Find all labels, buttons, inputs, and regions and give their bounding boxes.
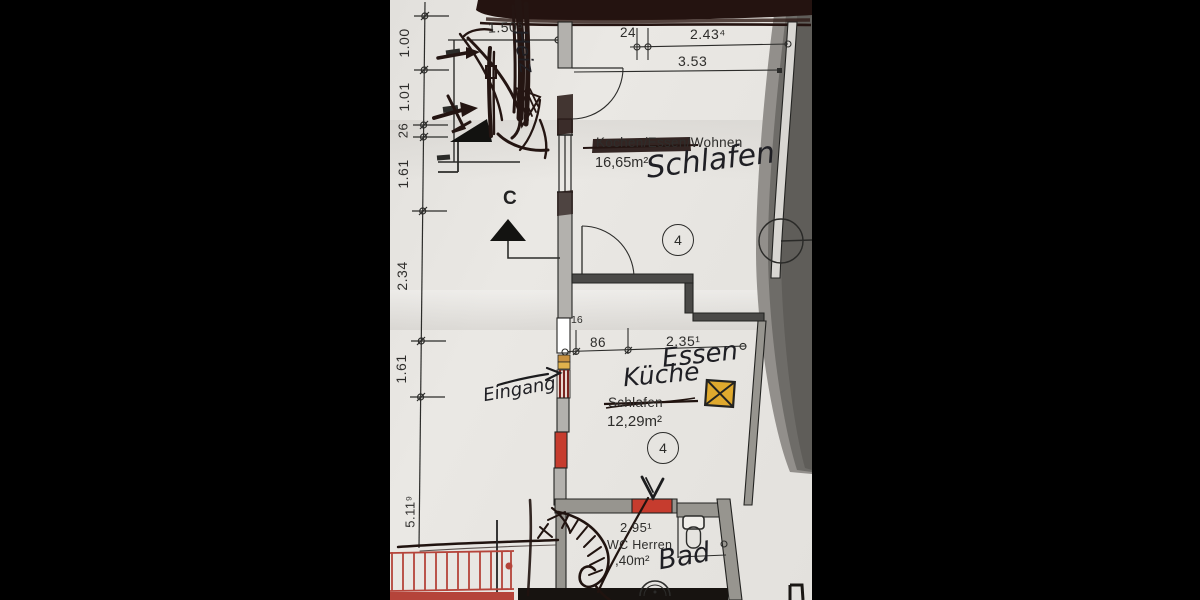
partial-glyph-bottom-right [790, 585, 803, 600]
red-stairs [390, 551, 514, 600]
dim-left-1: 1.00 [397, 23, 411, 63]
top-room-number: 4 [662, 224, 694, 256]
paper-edge-backdrop [756, 0, 812, 474]
dim-left-7: 5.11⁹ [404, 489, 417, 535]
handwritten-kueche: Küche [622, 359, 700, 391]
window-x-symbol [705, 380, 735, 407]
top-room-area: 16,65m² [595, 156, 648, 171]
dim-left-2: 1.01 [397, 77, 411, 117]
dim-24: 24 [620, 26, 636, 40]
dim-left-5: 2.34 [395, 256, 409, 296]
kitchen-area: 12,29m² [607, 414, 662, 429]
dim-86: 86 [590, 336, 606, 350]
hand-arrow-down [642, 477, 663, 498]
dim-295: 2.95¹ [620, 521, 652, 534]
bath-area: ,40m² [615, 554, 650, 568]
dim-left-6: 1.61 [394, 349, 408, 389]
dim-243: 2.43⁴ [690, 27, 726, 41]
kitchen-room-number: 4 [647, 432, 679, 464]
dim-left-3: 26 [397, 116, 410, 146]
section-c-label: C [503, 189, 517, 208]
door-top-room-upper [572, 68, 623, 119]
red-wall-segment-entry [555, 432, 567, 468]
floorplan-photo: 1.00 1.01 26 1.61 2.34 1.61 5.11⁹ 1.50⁵ … [390, 0, 812, 600]
wall-block-yellow [558, 362, 570, 369]
red-wall-segment-bath [632, 499, 672, 513]
kitchen-printed-name-struck: Schlafen [608, 396, 663, 410]
door-top-room-lower [582, 226, 634, 276]
dim-left-4: 1.61 [396, 154, 410, 194]
screenshot-stage: 1.00 1.01 26 1.61 2.34 1.61 5.11⁹ 1.50⁵ … [0, 0, 1200, 600]
dim-353: 3.53 [678, 54, 707, 68]
left-dimension-chain [410, 2, 449, 548]
window-symbol-upper [557, 135, 573, 192]
floorplan-linework [390, 0, 812, 600]
wall-block-tan [558, 355, 570, 362]
central-wall [554, 22, 573, 505]
dim-16: 16 [571, 315, 583, 326]
